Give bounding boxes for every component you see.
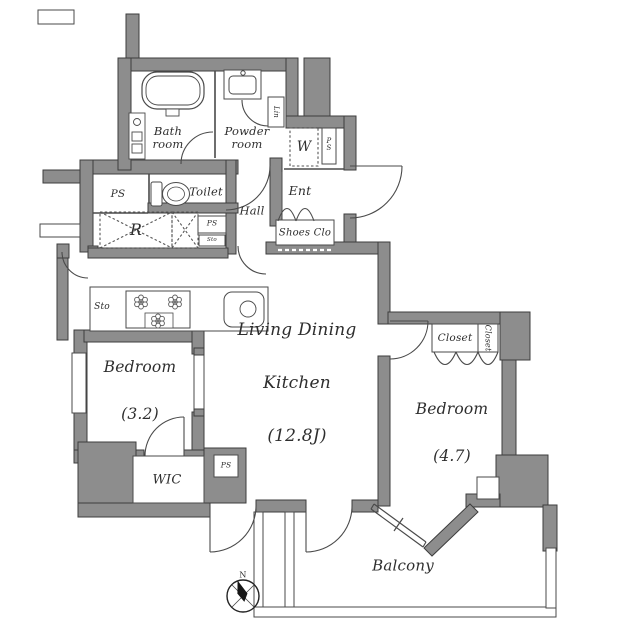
room-label-bedroom-east: Bedroom (4.7): [416, 375, 489, 491]
bathtub: [142, 72, 204, 116]
label-closet-side: Closet: [483, 325, 492, 352]
room-label-wic: WIC: [152, 474, 181, 489]
label-linen: Lin: [272, 106, 280, 118]
room-label-powder: Powder room: [225, 125, 270, 151]
label-pipe-space-wic: PS: [221, 462, 232, 471]
compass-north-label: N: [239, 570, 246, 579]
diagonal-window: [371, 504, 426, 547]
balcony-divider: [285, 512, 294, 608]
room-label-ldk: Living Dining Kitchen (12.8J): [238, 291, 357, 475]
balcony-door-1: [210, 506, 256, 552]
label-storage-small: Sto: [207, 237, 217, 243]
sliding-door: [194, 352, 204, 412]
side-window: [40, 224, 80, 237]
room-label-entrance: Ent: [289, 184, 312, 198]
balcony-rail-bottom: [254, 607, 556, 617]
hall-ldk-door: [238, 246, 266, 274]
bedroom-east-name: Bedroom: [416, 398, 489, 421]
label-washer: W: [297, 139, 312, 155]
closet-folding-doors: [434, 352, 456, 365]
shower-unit: [129, 113, 145, 159]
ldk-area: (12.8J): [238, 423, 357, 449]
bedroom-west-name: Bedroom: [104, 356, 177, 379]
exterior-fragment: [38, 10, 74, 24]
room-label-bedroom-west: Bedroom (3.2): [104, 333, 177, 449]
room-label-toilet: Toilet: [189, 185, 223, 198]
room-label-bath: Bath room: [152, 125, 183, 151]
room-label-balcony: Balcony: [372, 557, 434, 574]
label-storage-kitchen: Sto: [94, 302, 110, 312]
balcony-rail-right: [546, 548, 556, 608]
bedroom-east-door: [390, 321, 428, 359]
toilet-fixture: [151, 182, 190, 206]
bedroom-west-area: (3.2): [104, 403, 177, 426]
front-door: [350, 166, 402, 218]
balcony-door-2: [306, 506, 352, 552]
label-pipe-space-1: PS: [111, 188, 126, 200]
label-pipe-space-entrance: PS: [326, 138, 332, 152]
bedroom-west-window: [72, 353, 86, 413]
bedroom-east-area: (4.7): [416, 445, 489, 468]
powder-sink: [224, 70, 261, 99]
label-pipe-space-2: PS: [207, 220, 218, 229]
room-label-shoes-closet: Shoes Clo: [279, 227, 331, 239]
ldk-line2: Kitchen: [238, 370, 357, 396]
powder-door: [242, 100, 268, 126]
room-label-hall: Hall: [239, 204, 264, 217]
bath-door: [181, 132, 213, 164]
ldk-line1: Living Dining: [238, 317, 357, 343]
label-closet-main: Closet: [438, 332, 473, 344]
floor-plan: Bath room Powder room W PS Lin PS Toilet…: [0, 0, 640, 639]
label-refrigerator: R: [130, 221, 142, 239]
